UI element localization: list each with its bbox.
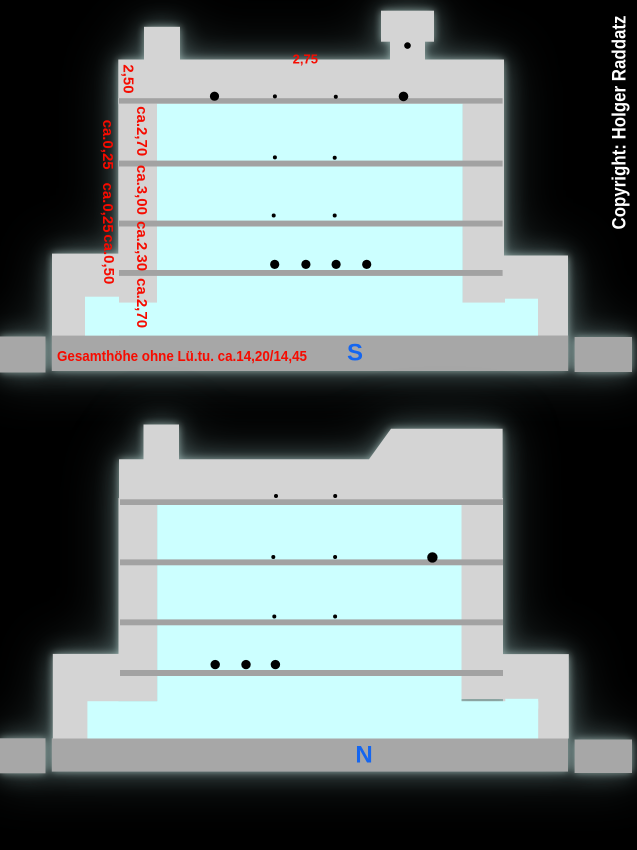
svg-text:2,75: 2,75 (293, 51, 318, 66)
svg-text:ca.0,25: ca.0,25 (99, 120, 116, 170)
svg-text:ca.2,70: ca.2,70 (133, 106, 150, 156)
svg-text:Copyright: Holger Raddatz: Copyright: Holger Raddatz (609, 15, 631, 229)
svg-text:ca.2,30: ca.2,30 (133, 221, 150, 271)
svg-text:ca.0,25: ca.0,25 (99, 182, 116, 232)
svg-text:ca.3,00: ca.3,00 (133, 165, 150, 215)
svg-text:2,50: 2,50 (120, 64, 137, 93)
svg-text:N: N (355, 742, 372, 769)
svg-text:ca.0,50: ca.0,50 (100, 234, 117, 284)
svg-text:Gesamthöhe ohne Lü.tu. ca.14,2: Gesamthöhe ohne Lü.tu. ca.14,20/14,45 (57, 348, 307, 365)
svg-text:S: S (347, 340, 363, 367)
svg-text:ca.2,70: ca.2,70 (133, 278, 150, 328)
